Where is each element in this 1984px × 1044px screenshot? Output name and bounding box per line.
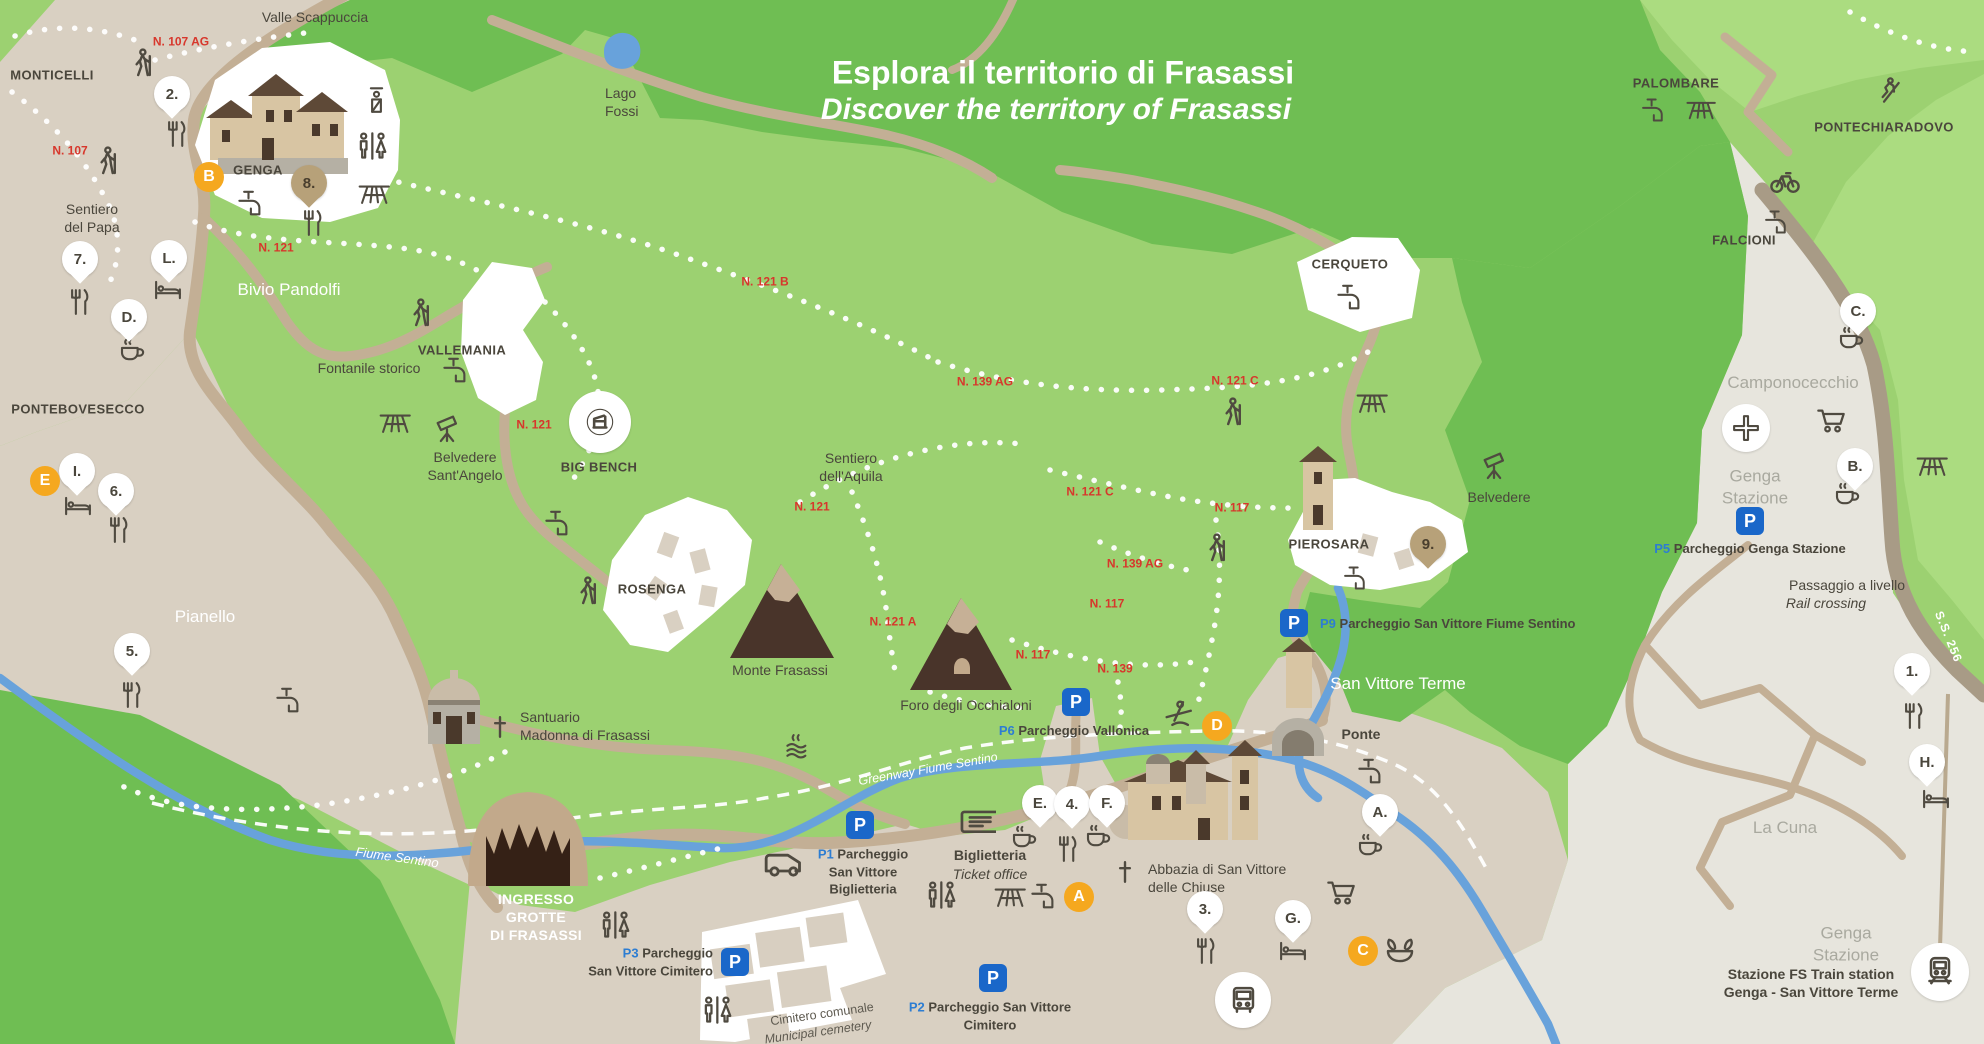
hiker-icon — [1199, 532, 1233, 566]
trail-label-n-121: N. 121 — [794, 499, 829, 514]
cafe-icon — [1083, 822, 1113, 852]
label-belvedere: Belvedere — [1467, 489, 1530, 507]
pin-label: G. — [1285, 910, 1301, 927]
restaurant-icon — [1052, 834, 1082, 864]
label-line: Ponte — [1342, 726, 1381, 744]
pin-label: 1. — [1906, 663, 1919, 680]
label-fontanile-storico: Fontanile storico — [318, 360, 421, 378]
rail-crossing-icon — [1722, 404, 1770, 452]
parking-code: P6 — [999, 723, 1015, 738]
parking-code: P3 — [623, 945, 639, 960]
label-line: Valle Scappuccia — [262, 9, 368, 27]
pin-label: E. — [1033, 795, 1047, 812]
map-title-italian: Esplora il territorio di Frasassi — [832, 55, 1294, 92]
orange-marker-d: D — [1202, 711, 1232, 741]
pin-h: H. — [1909, 744, 1945, 780]
label-line: Fossi — [605, 103, 638, 121]
label-line: ROSENGA — [618, 582, 687, 599]
ticket-icon — [958, 804, 996, 842]
label-line: Stazione — [1722, 487, 1788, 509]
label-line: San Vittore Terme — [1330, 673, 1465, 695]
trail-label-n-117: N. 117 — [1215, 500, 1250, 515]
label-santuario: SantuarioMadonna di Frasassi — [520, 709, 650, 745]
label-sentiero: Sentierodel Papa — [64, 201, 119, 237]
fountain-icon — [542, 508, 572, 538]
label-sentiero: Sentierodell'Aquila — [819, 450, 882, 486]
parking-label-p5: P5 Parcheggio Genga Stazione — [1654, 540, 1845, 558]
label-big-bench: BIG BENCH — [561, 460, 638, 477]
bed-icon — [63, 491, 93, 521]
trail-label-n-121-c: N. 121 C — [1066, 484, 1113, 499]
pin-label: 3. — [1199, 901, 1212, 918]
bed-icon — [1921, 784, 1951, 814]
restaurant-icon — [64, 287, 94, 317]
restaurant-icon — [116, 680, 146, 710]
pin-3: 3. — [1187, 891, 1223, 927]
fountain-icon — [1028, 881, 1058, 911]
parking-text: Parcheggio San Vittore — [928, 999, 1071, 1014]
parking-label-p6: P6 Parcheggio Vallonica — [999, 722, 1149, 740]
fountain-icon — [1334, 282, 1364, 312]
label-line: Sentiero — [819, 450, 882, 468]
trail-label-n-117: N. 117 — [1090, 596, 1125, 611]
bus-icon — [1215, 972, 1271, 1028]
pin-6: 6. — [98, 473, 134, 509]
label-line: Abbazia di San Vittore — [1148, 861, 1286, 879]
pin-label: D. — [122, 309, 137, 326]
label-line: PIEROSARA — [1289, 537, 1370, 554]
label-line: DI FRASASSI — [490, 927, 582, 945]
label-line: Lago — [605, 85, 638, 103]
telescope-icon — [1480, 451, 1512, 483]
pin-label: B. — [1848, 458, 1863, 475]
pin-label: I. — [73, 463, 81, 480]
label-pierosara: PIEROSARA — [1289, 537, 1370, 554]
pin-label: C. — [1851, 303, 1866, 320]
label-pontechiaradovo: PONTECHIARADOVO — [1814, 120, 1954, 137]
hiker-icon — [403, 297, 437, 331]
picnic-icon — [356, 175, 390, 209]
label-rail-crossing: Rail crossing — [1786, 595, 1866, 613]
label-line: Ticket office — [953, 866, 1028, 884]
picnic-icon — [1684, 92, 1716, 124]
pin-1: 1. — [1894, 653, 1930, 689]
map-overlay: Valle ScappucciaMONTICELLIGENGASentierod… — [0, 0, 1984, 1044]
picnic-icon — [377, 404, 411, 438]
pin-label: 6. — [110, 483, 123, 500]
trail-label-n-107-ag: N. 107 AG — [153, 34, 209, 49]
trail-label-n-121-b: N. 121 B — [741, 274, 788, 289]
pin-f: F. — [1089, 785, 1125, 821]
bike-icon — [1768, 164, 1802, 198]
parking-text: Parcheggio Genga Stazione — [1674, 541, 1846, 556]
label-rosenga: ROSENGA — [618, 582, 687, 599]
label-genga: GengaStazione — [1722, 465, 1788, 509]
label-cerqueto: CERQUETO — [1312, 257, 1389, 274]
label-pontebovesecco: PONTEBOVESECCO — [11, 402, 144, 419]
trail-label-n-121-a: N. 121 A — [870, 614, 917, 629]
parking-square-p9: P — [1280, 609, 1308, 637]
orange-marker-c: C — [1348, 936, 1378, 966]
pin-e: E. — [1022, 785, 1058, 821]
pin-label: 8. — [303, 175, 316, 192]
parking-text: San Vittore — [829, 864, 897, 879]
parking-code: P1 — [818, 847, 834, 862]
parking-code: P9 — [1320, 616, 1336, 631]
label-line: BIG BENCH — [561, 460, 638, 477]
label-line: CERQUETO — [1312, 257, 1389, 274]
fountain-icon — [235, 188, 265, 218]
label-line: Belvedere — [427, 449, 502, 467]
parking-label-p9: P9 Parcheggio San Vittore Fiume Sentino — [1320, 615, 1576, 633]
pin-5: 5. — [114, 633, 150, 669]
church-cross-icon — [1112, 859, 1138, 885]
orange-marker-a: A — [1064, 882, 1094, 912]
telescope-icon — [433, 414, 465, 446]
big-bench-badge-icon — [569, 391, 631, 453]
fountain-icon — [273, 685, 303, 715]
label-stazione-fs-train-station: Stazione FS Train stationGenga - San Vit… — [1724, 966, 1899, 1002]
hiker-icon — [570, 575, 604, 609]
label-line: Stazione FS Train station — [1724, 966, 1899, 984]
pin-g: G. — [1275, 900, 1311, 936]
pin-9: 9. — [1410, 526, 1446, 562]
label-line: Foro degli Occhialoni — [900, 697, 1032, 715]
parking-text: Parcheggio — [837, 847, 908, 862]
label-line: Genga — [1722, 465, 1788, 487]
pin-4: 4. — [1054, 786, 1090, 822]
orange-marker-b: B — [194, 162, 224, 192]
label-lago: LagoFossi — [605, 85, 638, 121]
info-point-icon — [359, 85, 389, 115]
pin-label: L. — [162, 250, 175, 267]
label-greenway-fiume-sentino: Greenway Fiume Sentino — [857, 749, 999, 789]
cart-icon — [1325, 878, 1357, 910]
label-line: Biglietteria — [954, 847, 1026, 865]
restaurant-icon — [1898, 701, 1928, 731]
label-genga: GengaStazione — [1813, 922, 1879, 966]
pin-7: 7. — [62, 241, 98, 277]
label-ponte: Ponte — [1342, 726, 1381, 744]
spa-fountain-icon — [1383, 932, 1417, 966]
label-line: PALOMBARE — [1633, 76, 1719, 93]
parking-square-p2: P — [979, 964, 1007, 992]
label-line: Fiume Sentino — [354, 844, 439, 872]
label-line: Passaggio a livello — [1789, 577, 1905, 595]
label-line: GENGA — [233, 163, 283, 180]
label-line: Monte Frasassi — [732, 662, 828, 680]
parking-text: Biglietteria — [829, 882, 896, 897]
label-camponocecchio: Camponocecchio — [1727, 372, 1858, 394]
label-valle-scappuccia: Valle Scappuccia — [262, 9, 368, 27]
label-passaggio-a-livello: Passaggio a livello — [1789, 577, 1905, 595]
parking-square-p5: P — [1736, 507, 1764, 535]
label-s-s-256: S.S. 256 — [1931, 609, 1965, 665]
label-line: INGRESSO — [490, 891, 582, 909]
parking-square-p3: P — [721, 948, 749, 976]
label-line: MONTICELLI — [10, 68, 93, 85]
pin-a: A. — [1362, 794, 1398, 830]
parking-square-p6: P — [1062, 688, 1090, 716]
cafe-icon — [117, 336, 147, 366]
camper-icon — [762, 846, 802, 886]
label-san-vittore-terme: San Vittore Terme — [1330, 673, 1465, 695]
canoe-icon — [1161, 698, 1195, 732]
parking-text: Cimitero — [964, 1017, 1017, 1032]
label-line: Camponocecchio — [1727, 372, 1858, 394]
parking-text: Parcheggio San Vittore Fiume Sentino — [1340, 616, 1576, 631]
label-line: GROTTE — [490, 909, 582, 927]
label-belvedere: BelvedereSant'Angelo — [427, 449, 502, 485]
label-la-cuna: La Cuna — [1753, 817, 1817, 839]
label-biglietteria: Biglietteria — [954, 847, 1026, 865]
parking-text: Parcheggio Vallonica — [1018, 723, 1149, 738]
pin-i: I. — [59, 453, 95, 489]
pin-label: 5. — [126, 643, 139, 660]
parking-text: San Vittore Cimitero — [588, 963, 713, 978]
label-line: La Cuna — [1753, 817, 1817, 839]
label-line: delle Chiuse — [1148, 879, 1286, 897]
climber-icon — [1872, 75, 1904, 107]
wc-icon — [355, 130, 387, 162]
parking-label-p3: P3 ParcheggioSan Vittore Cimitero — [588, 944, 713, 979]
parking-code: P5 — [1654, 541, 1670, 556]
map-title-english: Discover the territory of Frasassi — [821, 93, 1291, 127]
fountain-icon — [1341, 564, 1369, 592]
trail-label-n-117: N. 117 — [1016, 647, 1051, 662]
label-line: del Papa — [64, 219, 119, 237]
trail-label-n-107: N. 107 — [52, 143, 87, 158]
pin-c: C. — [1840, 293, 1876, 329]
trail-label-n-139-ag: N. 139 AG — [1107, 556, 1163, 571]
parking-label-p1: P1 ParcheggioSan VittoreBiglietteria — [818, 846, 908, 899]
label-line: FALCIONI — [1712, 233, 1776, 250]
picnic-icon — [1914, 447, 1948, 481]
label-pianello: Pianello — [175, 606, 236, 628]
label-line: Belvedere — [1467, 489, 1530, 507]
trail-label-n-121: N. 121 — [516, 417, 551, 432]
fountain-icon — [1355, 756, 1385, 786]
pin-label: H. — [1920, 754, 1935, 771]
church-cross-icon — [487, 714, 513, 740]
hot-spring-icon — [783, 732, 813, 762]
label-ingresso: INGRESSOGROTTEDI FRASASSI — [490, 891, 582, 945]
pin-d: D. — [111, 299, 147, 335]
pin-b: B. — [1837, 448, 1873, 484]
label-line: Santuario — [520, 709, 650, 727]
hiker-icon — [1215, 396, 1249, 430]
label-line: VALLEMANIA — [418, 343, 506, 360]
label-line: Fontanile storico — [318, 360, 421, 378]
label-line: Genga - San Vittore Terme — [1724, 984, 1899, 1002]
restaurant-icon — [103, 515, 133, 545]
label-line: Greenway Fiume Sentino — [857, 749, 999, 789]
parking-text: Parcheggio — [642, 945, 713, 960]
trail-label-n-121: N. 121 — [258, 240, 293, 255]
pin-label: 2. — [166, 86, 179, 103]
label-line: Bivio Pandolfi — [237, 279, 340, 301]
label-line: Sentiero — [64, 201, 119, 219]
label-line: dell'Aquila — [819, 468, 882, 486]
pin-2: 2. — [154, 76, 190, 112]
orange-marker-e: E — [30, 466, 60, 496]
hiker-icon — [125, 47, 159, 81]
label-fiume-sentino: Fiume Sentino — [354, 844, 439, 872]
wc-icon — [924, 879, 956, 911]
frasassi-territory-map: Esplora il territorio di Frasassi Discov… — [0, 0, 1984, 1044]
trail-label-n-139-ag: N. 139 AG — [957, 374, 1013, 389]
picnic-icon — [1354, 384, 1388, 418]
restaurant-icon — [1190, 936, 1220, 966]
label-monticelli: MONTICELLI — [10, 68, 93, 85]
pin-label: F. — [1101, 795, 1113, 812]
fountain-icon — [440, 355, 470, 385]
parking-code: P2 — [909, 999, 925, 1014]
train-icon — [1911, 943, 1969, 1001]
pin-label: 7. — [74, 251, 87, 268]
restaurant-icon — [161, 119, 191, 149]
label-line: PONTECHIARADOVO — [1814, 120, 1954, 137]
parking-label-p2: P2 Parcheggio San VittoreCimitero — [909, 998, 1071, 1033]
pin-8: 8. — [291, 165, 327, 201]
pin-l: L. — [151, 240, 187, 276]
label-line: Pianello — [175, 606, 236, 628]
trail-label-n-139: N. 139 — [1097, 661, 1132, 676]
wc-icon — [700, 994, 732, 1026]
label-genga: GENGA — [233, 163, 283, 180]
label-falcioni: FALCIONI — [1712, 233, 1776, 250]
pin-label: 9. — [1422, 536, 1435, 553]
trail-label-n-121-c: N. 121 C — [1211, 373, 1258, 388]
label-line: PONTEBOVESECCO — [11, 402, 144, 419]
label-vallemania: VALLEMANIA — [418, 343, 506, 360]
label-ticket-office: Ticket office — [953, 866, 1028, 884]
label-line: Sant'Angelo — [427, 467, 502, 485]
label-palombare: PALOMBARE — [1633, 76, 1719, 93]
label-foro-degli-occhialoni: Foro degli Occhialoni — [900, 697, 1032, 715]
wc-icon — [598, 909, 630, 941]
label-line: Madonna di Frasassi — [520, 727, 650, 745]
pin-label: A. — [1373, 804, 1388, 821]
label-line: Stazione — [1813, 944, 1879, 966]
hiker-icon — [90, 145, 124, 179]
label-abbazia-di-san-vittore: Abbazia di San Vittoredelle Chiuse — [1148, 861, 1286, 897]
label-bivio-pandolfi: Bivio Pandolfi — [237, 279, 340, 301]
parking-square-p1: P — [846, 811, 874, 839]
label-line: Genga — [1813, 922, 1879, 944]
cart-icon — [1815, 406, 1847, 438]
label-line: Rail crossing — [1786, 595, 1866, 613]
label-monte-frasassi: Monte Frasassi — [732, 662, 828, 680]
fountain-icon — [1639, 96, 1667, 124]
label-line: S.S. 256 — [1931, 609, 1965, 665]
restaurant-icon — [297, 208, 327, 238]
pin-label: 4. — [1066, 796, 1079, 813]
